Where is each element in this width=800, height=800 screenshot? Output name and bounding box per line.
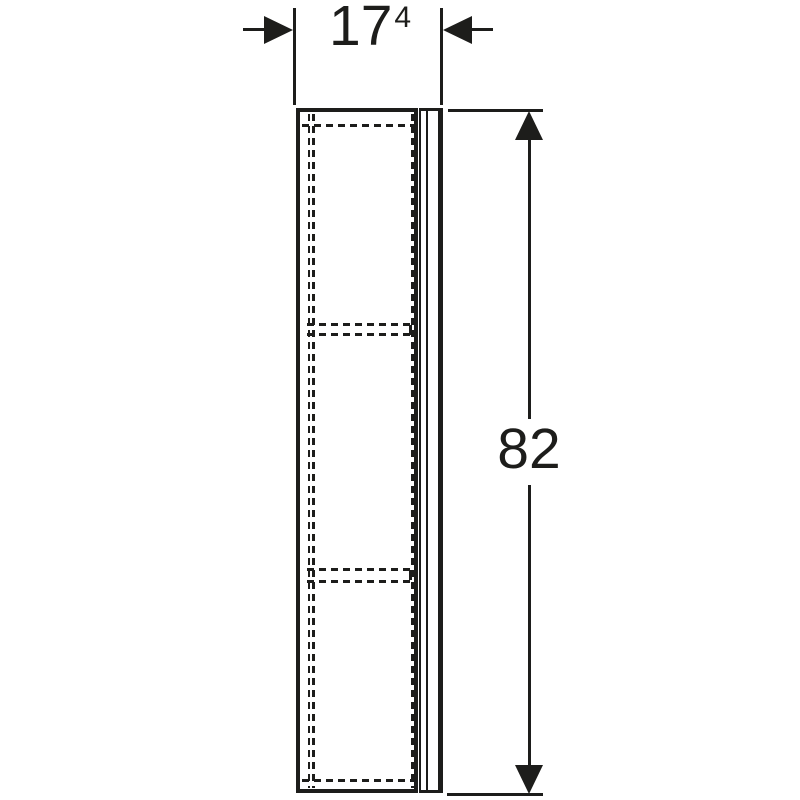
- bottom-panel-hidden-line: [302, 779, 414, 782]
- arrow-up-icon: [515, 111, 543, 140]
- height-extension-line-top: [448, 109, 543, 112]
- arrow-right-icon: [264, 16, 293, 44]
- width-extension-line-left: [293, 8, 296, 105]
- shelf-upper-hidden-line-top: [307, 323, 412, 326]
- shelf-lower-edge-connector: [409, 570, 412, 580]
- technical-drawing-canvas: 174 82: [0, 0, 800, 800]
- height-dimension-label: 82: [491, 421, 567, 478]
- width-dimension-value: 17: [329, 0, 392, 55]
- height-dimension-line-lower: [528, 485, 531, 765]
- shelf-upper-hidden-line-bottom: [307, 333, 412, 336]
- front-hidden-line: [411, 114, 414, 788]
- arrow-left-icon: [443, 16, 472, 44]
- door-inner-line: [426, 111, 428, 790]
- height-extension-line-bottom: [447, 793, 543, 796]
- back-panel-hidden-line-inner: [312, 114, 315, 788]
- shelf-lower-hidden-line-top: [307, 568, 412, 571]
- height-dimension-line-upper: [528, 138, 531, 419]
- shelf-lower-hidden-line-bottom: [307, 580, 412, 583]
- back-panel-hidden-line: [308, 114, 315, 788]
- back-panel-hidden-line-outer: [308, 114, 310, 788]
- width-dimension-label: 174: [329, 0, 411, 55]
- shelf-upper-edge-connector: [409, 325, 412, 335]
- arrow-down-icon: [515, 765, 543, 794]
- door-panel: [419, 108, 443, 793]
- width-dimension: 174: [0, 0, 800, 106]
- top-panel-hidden-line: [302, 124, 414, 127]
- width-dimension-superscript: 4: [394, 3, 411, 33]
- height-dimension-value: 82: [497, 417, 560, 481]
- width-dimension-tail-right: [469, 28, 493, 31]
